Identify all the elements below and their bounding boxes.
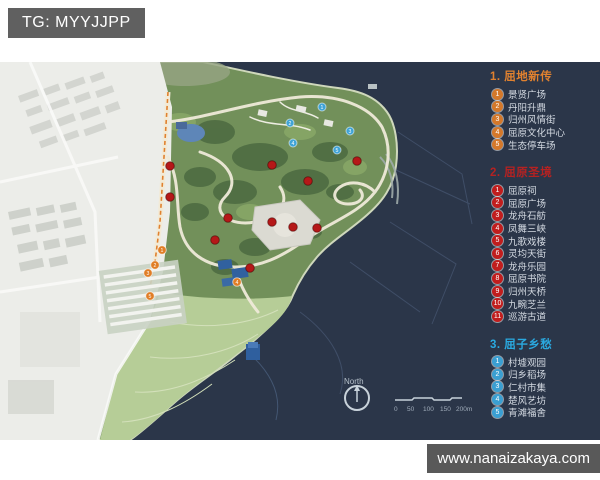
legend-item: 4楚风艺坊 [492,393,596,406]
legend-item-number: 6 [492,248,503,259]
legend-item: 7龙舟乐园 [492,260,596,273]
parking-lot [99,260,187,335]
svg-text:1: 1 [321,105,324,111]
legend-item-number: 8 [492,273,503,284]
svg-text:2: 2 [289,121,292,127]
legend-item-number: 2 [492,101,503,112]
legend-item: 1景贤广场 [492,88,596,101]
legend-item-number: 9 [492,286,503,297]
map-marker-orange: 5 [146,292,155,301]
legend-item-number: 2 [492,369,503,380]
legend-item: 8屈原书院 [492,272,596,285]
dock [368,84,377,89]
legend-item-number: 1 [492,89,503,100]
legend-section-title: 1. 屈地新传 [490,68,596,84]
legend-section: 1. 屈地新传1景贤广场2丹阳升鼎3归州风情街4屈原文化中心5生态停车场 [476,68,596,151]
legend-item-number: 2 [492,197,503,208]
legend-item: 5生态停车场 [492,138,596,151]
legend-item-number: 1 [492,185,503,196]
legend-item: 1屈原祠 [492,184,596,197]
map-marker-orange: 3 [144,269,153,278]
svg-text:3: 3 [349,129,352,135]
legend-item-number: 3 [492,381,503,392]
map-marker-orange: 2 [151,261,160,270]
legend-item-number: 5 [492,139,503,150]
map-marker-red [268,218,277,227]
legend-item-number: 3 [492,114,503,125]
watermark-url: www.nanaizakaya.com [427,444,600,473]
legend-item-number: 7 [492,260,503,271]
legend-item-label: 青滩福舍 [508,405,546,419]
scale-tick-100: 100 [423,406,434,413]
legend-item-number: 3 [492,210,503,221]
legend-section: 2. 屈原圣境1屈原祠2屈原广场3龙舟石舫4凤舞三峡5九歌戏楼6灵均天街7龙舟乐… [476,164,596,323]
legend-item: 6灵均天街 [492,247,596,260]
map-marker-blue: 3 [346,127,354,135]
legend-section-title: 3. 屈子乡愁 [490,336,596,352]
svg-text:1: 1 [161,248,164,254]
legend-section-title: 2. 屈原圣境 [490,164,596,180]
legend-item: 1村墟观园 [492,356,596,369]
legend-item: 4屈原文化中心 [492,126,596,139]
scale-tick-0: 0 [394,406,398,413]
map-marker-red [224,214,233,223]
svg-text:2: 2 [154,263,157,269]
svg-text:5: 5 [149,294,152,300]
svg-text:3: 3 [147,271,150,277]
map-marker-blue: 5 [333,146,341,154]
legend-item-number: 10 [492,298,503,309]
scale-tick-50: 50 [407,406,415,413]
legend-item-number: 11 [492,311,503,322]
legend-item-number: 4 [492,223,503,234]
legend-section: 3. 屈子乡愁1村墟观园2归乡稻场3仁村市集4楚风艺坊5青滩福舍 [476,336,596,419]
svg-text:5: 5 [336,148,339,154]
map-marker-red [211,236,220,245]
legend: 1. 屈地新传1景贤广场2丹阳升鼎3归州风情街4屈原文化中心5生态停车场2. 屈… [476,68,596,431]
map-marker-red [313,224,322,233]
legend-item-number: 1 [492,356,503,367]
legend-item-label: 巡游古道 [508,309,546,323]
legend-item: 2丹阳升鼎 [492,101,596,114]
legend-item: 5青滩福舍 [492,406,596,419]
map-marker-blue: 1 [318,103,326,111]
legend-item-number: 5 [492,407,503,418]
legend-item: 2屈原广场 [492,197,596,210]
map-marker-red [353,157,362,166]
legend-item: 11巡游古道 [492,310,596,323]
legend-item: 4凤舞三峡 [492,222,596,235]
map-marker-blue: 4 [289,139,297,147]
map-marker-red [289,223,298,232]
svg-text:4: 4 [236,280,239,286]
legend-item: 3龙舟石舫 [492,209,596,222]
map-marker-red [304,177,313,186]
map-marker-red [246,264,255,273]
watermark-tag-label: TG: MYYJJPP [8,8,145,38]
legend-item-number: 5 [492,235,503,246]
map-marker-red [166,162,175,171]
legend-item-number: 4 [492,394,503,405]
map-marker-orange: 4 [233,278,242,287]
legend-item: 3归州风情街 [492,113,596,126]
legend-item: 10九畹芝兰 [492,297,596,310]
scale-tick-150: 150 [440,406,451,413]
scale-tick-200: 200m [456,406,472,413]
legend-item-label: 生态停车场 [508,138,556,152]
legend-item: 5九歌戏楼 [492,234,596,247]
map-marker-red [166,193,175,202]
north-label: North [344,377,364,386]
legend-item: 2归乡稻场 [492,368,596,381]
map-marker-blue: 2 [286,119,294,127]
legend-item: 9归州天桥 [492,285,596,298]
map-marker-red [268,161,277,170]
legend-item: 3仁村市集 [492,381,596,394]
map-marker-orange: 1 [158,246,167,255]
legend-item-number: 4 [492,127,503,138]
svg-text:4: 4 [292,141,295,147]
